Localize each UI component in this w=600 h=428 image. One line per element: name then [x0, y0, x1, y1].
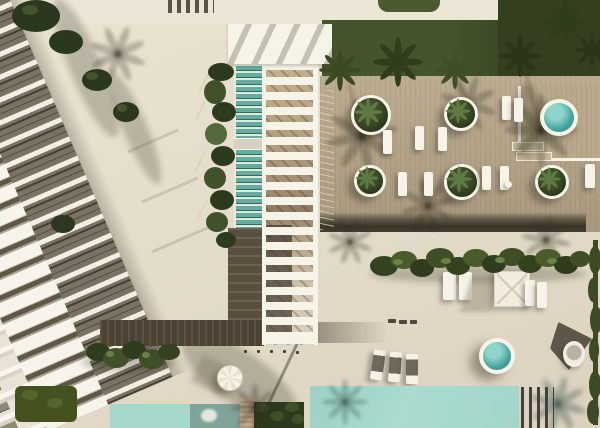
walkway-shrubs: [86, 341, 180, 369]
building-edge-trees: [12, 0, 139, 233]
pool-shadows: [231, 344, 593, 428]
aerial-render: [0, 0, 600, 428]
plants-layer: [0, 0, 600, 428]
lap-pool-plant-strip: [204, 63, 236, 248]
lawn-palms: [319, 0, 600, 91]
hedge-row-right: [370, 248, 590, 277]
planter-palms: [354, 98, 561, 192]
green-edge-strip: [587, 240, 600, 425]
